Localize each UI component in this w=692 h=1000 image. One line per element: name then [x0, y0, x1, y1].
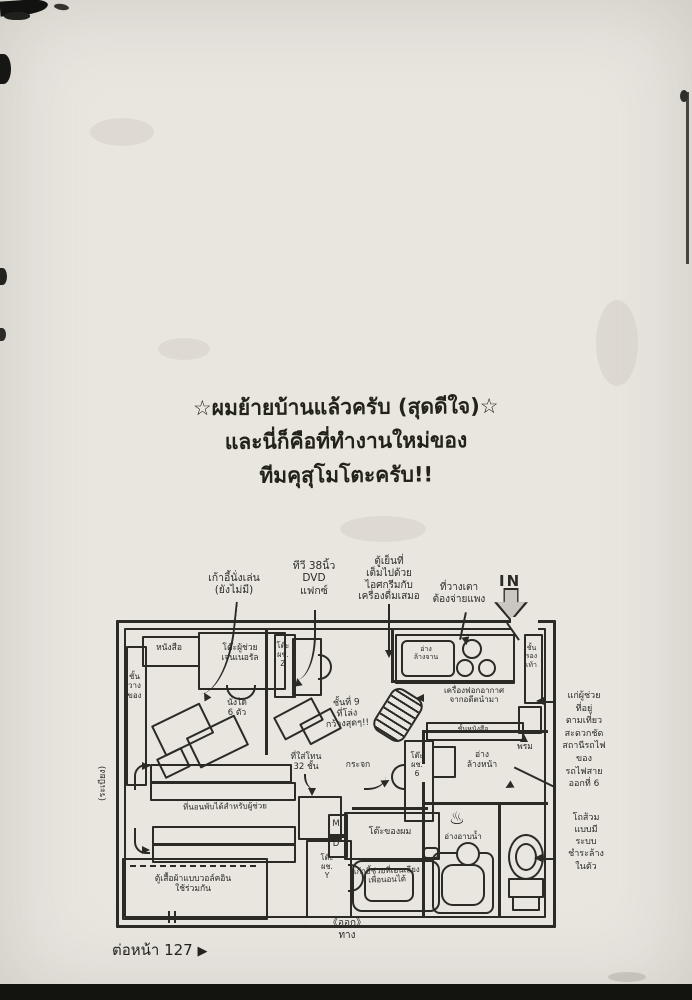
futon-2: [150, 782, 296, 801]
left-wall-shelf-label: ชั้น วาง ของ: [126, 672, 143, 700]
hot-spring-icon: ♨: [444, 808, 470, 829]
washbasin: [432, 746, 456, 778]
arrowhead-tone: [308, 788, 316, 796]
table-seats-label: นั่งได้ 6 ตัว: [214, 698, 260, 718]
paper-smudge: [340, 516, 426, 542]
exit-note: 《ออก》 ทาง: [314, 918, 380, 942]
bath-faucet: [456, 842, 480, 866]
toilet-tank: [508, 878, 544, 898]
futon-3: [152, 826, 296, 845]
continue-arrow-icon: ▶: [198, 944, 208, 959]
assistant-desk-z-label: โต๊ะ ผช. Z: [274, 642, 292, 669]
continue-marker: ต่อหน้า 127 ▶: [112, 938, 208, 962]
my-desk-shelf-line: [352, 807, 428, 810]
closet-hanger-rail: [130, 865, 256, 867]
bath-label: อ่างอาบน้ำ: [432, 832, 494, 841]
kitchen-sink-label: อ่าง ล้างจาน: [402, 645, 450, 662]
caption-line-2: และนี่ก็คือที่ทำงานใหม่ของ: [146, 423, 546, 460]
bathtub-inner: [441, 864, 485, 906]
arrowhead-futon-bottom: [142, 846, 150, 854]
mirror-label: กระจก: [338, 760, 378, 770]
arrowhead-toilet: [534, 854, 542, 862]
tone-cabinet: [298, 796, 342, 840]
paper-smudge: [596, 300, 638, 386]
scan-bar-bottom: [0, 984, 692, 1000]
scan-blotch-left-edge-3: [0, 328, 6, 341]
wall-midroom-kitchen: [391, 629, 394, 683]
walkin-closet-label: ตู้เสื้อผ้าแบบวอล์คอิน ใช้ร่วมกัน: [126, 874, 260, 894]
note-stove: ที่วางเตา ต้องจ่ายแพง: [422, 582, 496, 606]
manga-scan-page: ☆ผมย้ายบ้านแล้วครับ (สุดดีใจ)☆ และนี่ก็ค…: [0, 0, 692, 1000]
scan-blotch-right-edge: [680, 90, 688, 102]
entrance-gap: [511, 617, 538, 632]
shoe-shelf-label: ชั้น รอง เท้า: [524, 644, 539, 669]
towel-shelf-label: ชั้นหนังสือ: [428, 725, 518, 733]
continue-label: ต่อหน้า 127: [112, 941, 193, 959]
futon-1: [150, 764, 292, 783]
paper-smudge-bottom: [608, 972, 646, 982]
floor9-note: ชั้นที่ 9 ที่โล่ง กว้างสุดๆ!!: [314, 696, 380, 731]
bookshelf-label: หนังสือ: [143, 643, 195, 653]
scan-blotch-left-edge: [0, 54, 11, 84]
stove-burner-1: [462, 639, 482, 659]
entrance-in-label: IN: [499, 572, 521, 590]
scan-line-right-edge: [686, 92, 689, 264]
air-purifier-note: เครื่องฟอกอากาศ จากอดีตนำมา: [424, 686, 524, 705]
arrowhead-futon-top: [142, 762, 150, 770]
stove-burner-3: [478, 659, 496, 677]
arrowhead-assistant: [536, 697, 544, 705]
general-assistant-desk-label: โต๊ะผู้ช่วย เจนเนอรัล: [200, 643, 280, 663]
wall-bath-toilet: [498, 802, 501, 917]
entrance-mat-label: พรม: [508, 742, 542, 752]
caption-line-1: ☆ผมย้ายบ้านแล้วครับ (สุดดีใจ)☆: [146, 389, 546, 426]
assistant-note: แก่ผู้ช่วย ที่อยู่ ตามเที่ยว สะดวกชัด สถ…: [552, 690, 616, 791]
caption-line-3: ทีมคุสุโมโตะครับ!!: [146, 457, 546, 494]
my-desk-label: โต๊ะของผม: [348, 827, 432, 838]
wall-washroom-bath: [422, 802, 548, 805]
scan-blotch-left-edge-2: [0, 268, 7, 285]
stove-burner-2: [456, 659, 474, 677]
caption-text: ☆ผมย้ายบ้านแล้วครับ (สุดดีใจ)☆ และนี่ก็ค…: [146, 389, 547, 494]
floor-plan: หนังสือ โต๊ะผู้ช่วย เจนเนอรัล ชั้น วาง ข…: [112, 612, 568, 934]
toilet-base: [512, 896, 540, 911]
leader-toilet: [542, 858, 556, 860]
assistant-desk-6-label: โต๊ะ ผช. 6: [404, 752, 430, 779]
assistant-desk-y-label: โต๊ะ ผช. Y: [316, 854, 338, 881]
paper-smudge: [158, 338, 210, 360]
toilet-note: โถส้วม แบบมี ระบบ ชำระล้าง ในตัว: [558, 812, 614, 873]
scan-blotch-top-left-2: [4, 12, 30, 20]
washbasin-label: อ่าง ล้างหน้า: [454, 750, 510, 770]
paper-smudge: [90, 118, 154, 146]
arrowhead-purifier: [416, 694, 424, 702]
window-tick-1: [168, 911, 170, 923]
balcony-label: (ระเบียง): [98, 748, 109, 818]
window-tick-2: [174, 911, 176, 923]
scan-blotch-top-left-3: [54, 3, 70, 11]
leader-assistant: [543, 701, 555, 703]
note-tv: ทีวี 38นิ้ว DVD แฟกซ์: [278, 560, 350, 597]
